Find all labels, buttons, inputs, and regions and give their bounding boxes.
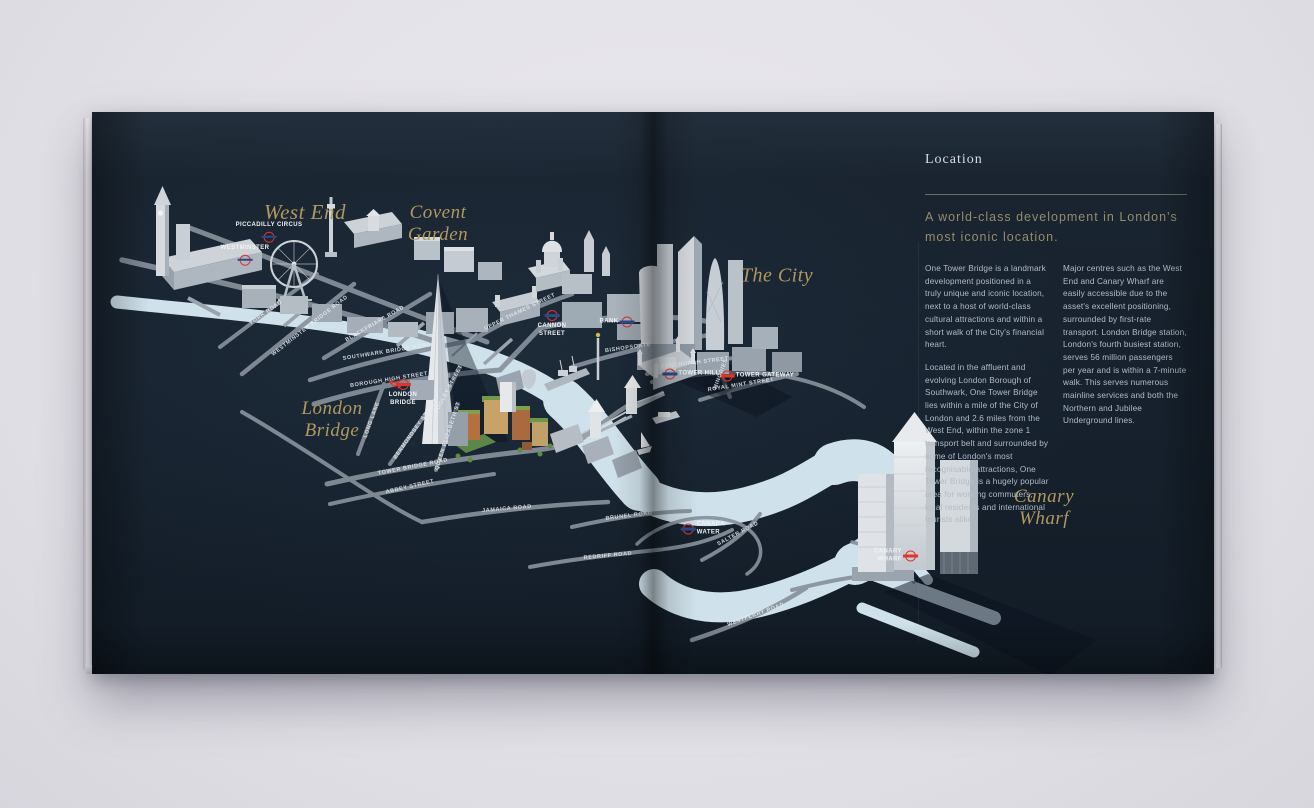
station-label: CANARY WHARF <box>874 549 902 564</box>
page-title: Location <box>925 152 1187 168</box>
station-piccadilly-circus: PICCADILLY CIRCUS <box>236 222 303 243</box>
open-brochure: West End Covent Garden The City London B… <box>92 112 1214 674</box>
paragraph: Major centres such as the West End and C… <box>1063 263 1187 428</box>
station-westminster: WESTMINSTER <box>221 245 270 266</box>
road-label-jamaica-road: JAMAICA ROAD <box>482 504 532 514</box>
district-label-covent-garden: Covent Garden <box>408 202 468 246</box>
station-label: TOWER HILL <box>678 370 719 378</box>
road-label-westferry-road: WESTFERRY ROAD <box>727 602 786 628</box>
underground-roundel-icon <box>239 254 250 265</box>
station-label: BANK <box>600 318 619 326</box>
road-label-bishopsgate: BISHOPSGATE <box>605 342 652 354</box>
road-label-long-lane: LONG LANE <box>363 401 382 439</box>
page-stack-edge-right <box>1213 124 1222 668</box>
page-crease <box>918 242 919 642</box>
station-label: WESTMINSTER <box>221 245 270 253</box>
location-headline: A world-class development in London's mo… <box>925 207 1187 247</box>
body-column-left: One Tower Bridge is a landmark developme… <box>925 263 1049 527</box>
district-label-london-bridge: London Bridge <box>301 398 362 442</box>
station-cannon-street: CANNON STREET <box>538 310 567 338</box>
photo-backdrop: { "colors": { "page_navy": "#16212d", "r… <box>0 0 1314 808</box>
station-label: CANNON STREET <box>538 323 567 338</box>
road-label-abbey-street: ABBEY STREET <box>385 479 435 496</box>
underground-roundel-icon <box>264 231 275 242</box>
station-london-bridge: LONDON BRIDGE <box>389 379 417 407</box>
station-tower-hill: TOWER HILL <box>664 369 719 380</box>
divider-rule <box>925 194 1187 195</box>
brochure-spread: West End Covent Garden The City London B… <box>92 112 1214 674</box>
underground-roundel-icon <box>546 310 557 321</box>
underground-roundel-icon <box>621 317 632 328</box>
paragraph: Located in the affluent and evolving Lon… <box>925 362 1049 527</box>
location-panel: Location A world-class development in Lo… <box>925 152 1187 527</box>
station-label: LONDON BRIDGE <box>389 392 417 407</box>
station-label: PICCADILLY CIRCUS <box>236 222 303 230</box>
station-canada-water: CANADA WATER <box>683 522 725 537</box>
road-label-southwark-bridge-road: SOUTHWARK BRIDGE ROAD <box>342 342 431 362</box>
district-label-the-city: The City <box>741 265 813 288</box>
underground-roundel-icon <box>905 551 916 562</box>
body-column-right: Major centres such as the West End and C… <box>1063 263 1187 527</box>
paragraph: One Tower Bridge is a landmark developme… <box>925 263 1049 352</box>
station-bank: BANK <box>600 317 633 328</box>
road-label-york-road: YORK ROAD <box>248 299 283 326</box>
road-label-blackfriars-road: BLACKFRIARS ROAD <box>344 305 405 344</box>
underground-roundel-icon <box>664 369 675 380</box>
station-label: CANADA WATER <box>697 522 725 537</box>
road-label-brunel-road: BRUNEL ROAD <box>605 510 653 522</box>
road-label-redriff-road: REDRIFF ROAD <box>583 551 632 561</box>
district-label-west-end: West End <box>264 200 346 224</box>
underground-roundel-icon <box>683 524 694 535</box>
station-canary-wharf: CANARY WHARF <box>874 549 916 564</box>
body-columns: One Tower Bridge is a landmark developme… <box>925 263 1187 527</box>
